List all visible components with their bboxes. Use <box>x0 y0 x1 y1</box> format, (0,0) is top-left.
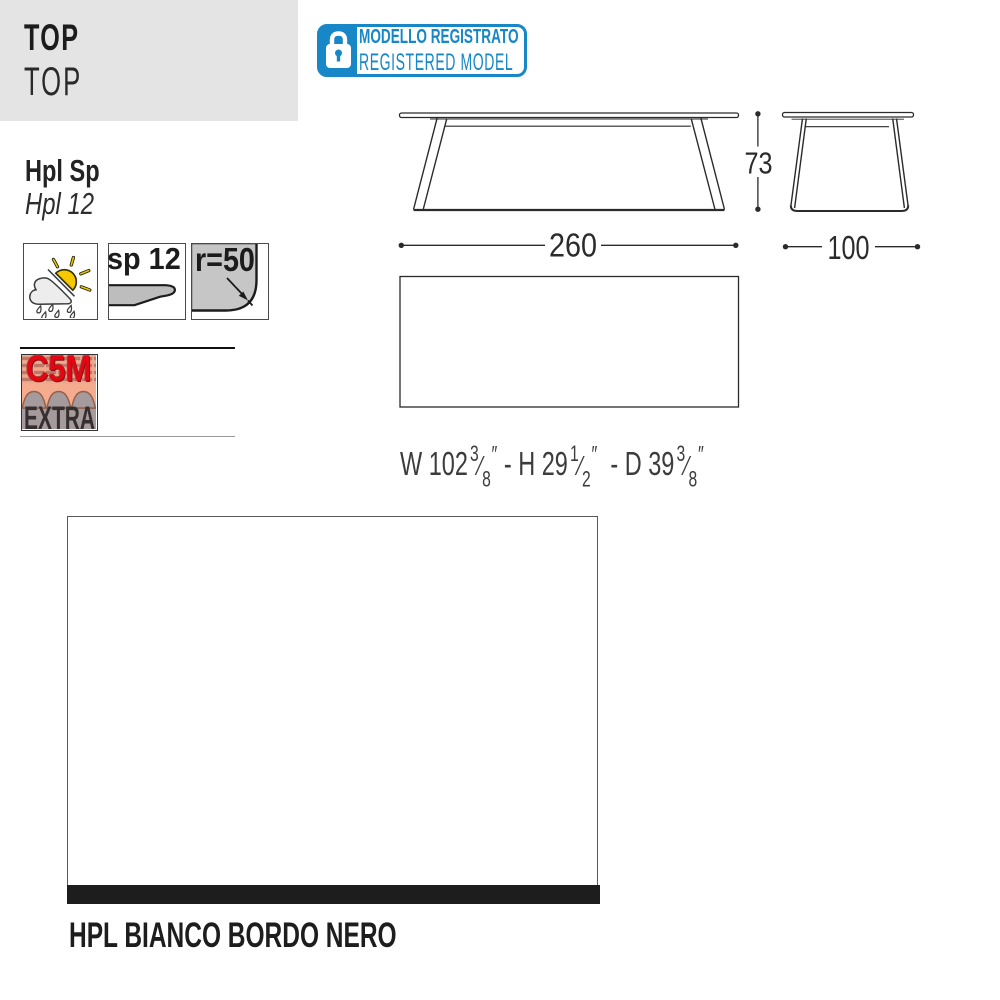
svg-text:260: 260 <box>549 226 597 263</box>
svg-text:100: 100 <box>828 229 870 266</box>
svg-text:73: 73 <box>745 145 773 180</box>
